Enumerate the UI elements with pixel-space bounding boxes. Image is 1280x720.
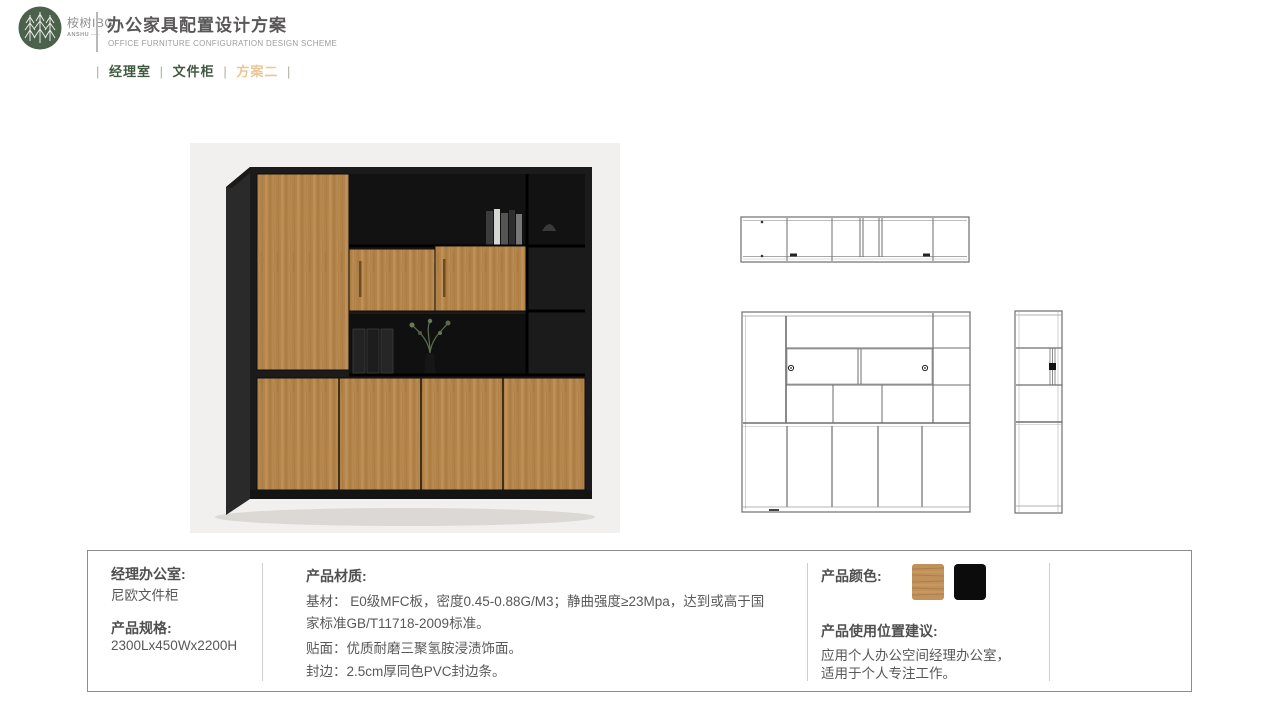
page-subtitle: OFFICE FURNITURE CONFIGURATION DESIGN SC… [108,39,337,48]
tab-manager-room: 经理室 [109,64,151,79]
tab-separator: | [160,64,164,79]
usage-line: 应用个人办公空间经理办公室， [821,644,1010,664]
black-color-swatch [954,564,986,600]
material-base: 基材： E0级MFC板，密度0.45-0.88G/M3；静曲强度≥23Mpa，达… [306,591,776,635]
wood-color-swatch [912,564,944,600]
panel-divider [1049,563,1050,681]
product-info-panel: 经理办公室: 尼欧文件柜 产品规格: 2300Lx450Wx2200H 产品材质… [87,550,1192,692]
header-divider [96,12,98,52]
front-elevation-drawing [741,311,971,513]
room-value: 尼欧文件柜 [111,584,179,604]
tab-separator: | [287,64,291,79]
material-surface: 贴面：优质耐磨三聚氢胺浸渍饰面。 [306,637,522,657]
tab-file-cabinet: 文件柜 [173,64,215,79]
room-label: 经理办公室: [111,564,186,584]
spec-value: 2300Lx450Wx2200H [111,638,237,653]
tab-separator: | [223,64,227,79]
tab-scheme-2: 方案二 [236,64,278,79]
page: 桉树IBC ANSHU ━━━ 办公家具配置设计方案 OFFICE FURNIT… [0,0,1280,720]
usage-line: 适用于个人专注工作。 [821,662,956,682]
color-title: 产品颜色: [821,566,882,586]
cabinet-3d-render [190,143,620,533]
spec-label: 产品规格: [111,618,172,638]
logo-tree-icon [17,5,63,51]
material-edge: 封边：2.5cm厚同色PVC封边条。 [306,660,506,680]
page-title: 办公家具配置设计方案 [107,11,287,36]
material-title: 产品材质: [306,566,367,586]
tab-separator: | [96,64,100,79]
breadcrumb: | 经理室 | 文件柜 | 方案二 | [94,61,293,80]
side-elevation-drawing [1014,310,1063,514]
usage-title: 产品使用位置建议: [821,621,938,641]
plan-view-drawing [740,216,970,263]
panel-divider [262,563,263,681]
panel-divider [807,563,808,681]
